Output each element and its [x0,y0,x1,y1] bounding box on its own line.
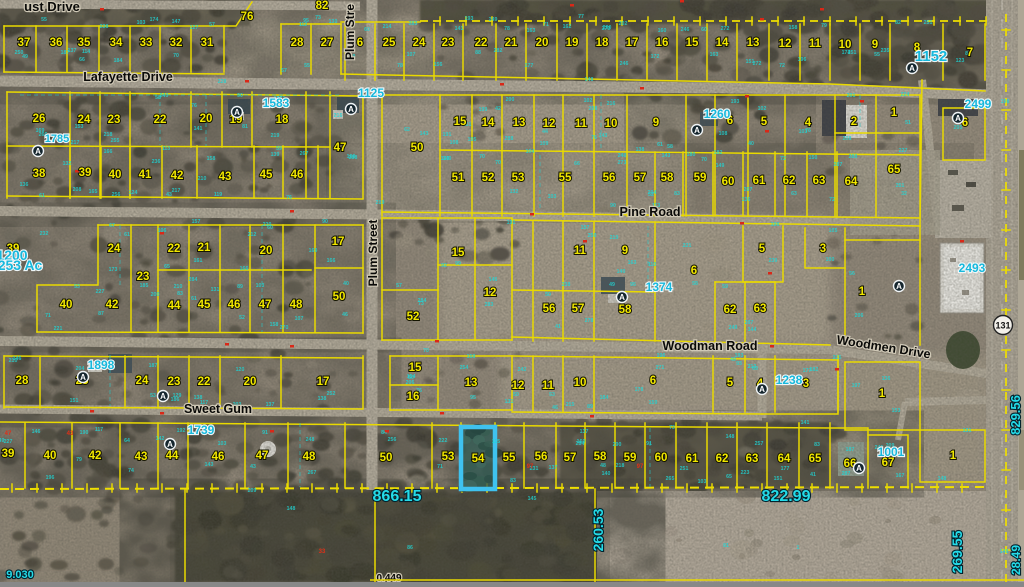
svg-text:108: 108 [719,131,728,137]
svg-text:284: 284 [189,277,198,283]
svg-text:219: 219 [271,133,280,139]
svg-text:150: 150 [809,155,818,161]
svg-text:254: 254 [460,365,469,371]
svg-text:159: 159 [467,354,476,360]
svg-text:142: 142 [156,436,165,442]
svg-text:196: 196 [798,57,807,63]
svg-text:62: 62 [724,304,737,316]
svg-text:3: 3 [820,243,826,255]
svg-text:139: 139 [271,152,280,158]
svg-text:76: 76 [241,11,254,23]
svg-text:255: 255 [111,138,120,144]
svg-text:16: 16 [656,37,669,49]
svg-text:284: 284 [576,441,585,447]
svg-text:267: 267 [744,187,753,193]
svg-text:22: 22 [168,243,181,255]
svg-text:238: 238 [562,282,571,288]
svg-text:143: 143 [420,131,429,137]
svg-text:81: 81 [723,543,729,549]
svg-text:28: 28 [291,37,304,49]
svg-text:1: 1 [797,545,800,551]
svg-text:147: 147 [172,19,181,25]
svg-text:10: 10 [839,39,852,51]
svg-text:17: 17 [332,236,345,248]
svg-text:47: 47 [334,142,347,154]
svg-text:251: 251 [924,20,933,26]
svg-text:A: A [348,105,354,114]
svg-text:184: 184 [600,395,609,401]
svg-text:102: 102 [758,106,767,112]
svg-text:180: 180 [687,152,696,158]
svg-text:251: 251 [680,466,689,472]
svg-text:20: 20 [260,245,273,257]
svg-text:50: 50 [411,142,424,154]
svg-text:38: 38 [33,168,46,180]
svg-text:187: 187 [846,447,855,453]
svg-text:143: 143 [662,153,671,159]
svg-text:250: 250 [588,233,597,239]
svg-text:A: A [896,282,902,291]
svg-text:73: 73 [669,425,675,431]
svg-text:165: 165 [89,189,98,195]
svg-text:256: 256 [112,192,121,198]
svg-text:115: 115 [492,439,500,445]
svg-text:158: 158 [207,156,216,162]
svg-text:4: 4 [805,117,812,129]
svg-text:82: 82 [895,20,901,26]
svg-text:16: 16 [407,391,420,403]
svg-text:25: 25 [383,37,396,49]
svg-text:109: 109 [540,141,549,147]
svg-text:146: 146 [32,429,41,435]
svg-text:163: 163 [527,28,536,34]
svg-text:193: 193 [731,99,740,105]
svg-text:13: 13 [465,377,478,389]
svg-text:9: 9 [622,245,628,257]
svg-text:28.49: 28.49 [1009,545,1023,575]
svg-text:71: 71 [45,313,51,319]
svg-text:52: 52 [407,311,420,323]
svg-text:137: 137 [266,402,275,408]
svg-text:249: 249 [489,17,498,23]
svg-text:91: 91 [262,430,268,436]
svg-text:50: 50 [380,452,393,464]
svg-text:138: 138 [636,147,645,153]
svg-text:45: 45 [260,169,273,181]
svg-text:219: 219 [610,235,619,241]
svg-text:169: 169 [309,248,318,254]
svg-text:5: 5 [727,377,734,389]
svg-text:13: 13 [747,37,760,49]
svg-text:163: 163 [710,52,719,58]
svg-text:199: 199 [479,107,488,113]
svg-text:227: 227 [4,439,13,445]
svg-text:41: 41 [810,472,816,478]
svg-text:97: 97 [637,464,644,470]
svg-text:83: 83 [674,191,680,197]
svg-text:287: 287 [842,471,851,477]
svg-text:12: 12 [779,38,792,50]
svg-text:215: 215 [833,355,842,361]
svg-text:53: 53 [442,451,455,463]
svg-text:136: 136 [882,376,891,382]
svg-text:1260: 1260 [704,107,731,121]
svg-text:Sweet Gum: Sweet Gum [184,402,252,416]
svg-text:70: 70 [423,348,429,354]
svg-text:132: 132 [63,161,72,167]
svg-text:208: 208 [589,106,598,112]
svg-text:53: 53 [549,392,555,398]
svg-text:22: 22 [198,376,211,388]
svg-text:141: 141 [194,126,203,132]
svg-text:1374: 1374 [646,280,673,294]
svg-text:201: 201 [847,93,856,99]
svg-text:58: 58 [619,304,632,316]
svg-text:73: 73 [418,301,424,307]
svg-text:Plum Stre: Plum Stre [343,4,357,60]
svg-text:182: 182 [714,150,723,156]
svg-text:34: 34 [110,37,123,49]
svg-text:55: 55 [41,17,47,23]
svg-text:160: 160 [658,28,667,34]
svg-text:273: 273 [618,160,627,166]
svg-text:20: 20 [536,37,549,49]
svg-text:7: 7 [967,47,973,59]
svg-text:56: 56 [849,271,855,277]
svg-text:267: 267 [300,151,309,157]
svg-text:97: 97 [527,464,534,470]
svg-text:9: 9 [653,117,659,129]
svg-text:14: 14 [482,117,495,129]
svg-text:31: 31 [201,37,214,49]
svg-text:249: 249 [729,325,738,331]
svg-text:283: 283 [409,21,418,27]
svg-text:70: 70 [173,53,179,59]
svg-text:196: 196 [657,353,666,359]
svg-text:53: 53 [150,393,156,399]
svg-text:32: 32 [901,191,907,197]
svg-text:270: 270 [280,325,289,331]
svg-text:11: 11 [574,245,587,257]
svg-text:33: 33 [140,37,153,49]
svg-text:221: 221 [683,243,692,249]
svg-text:79: 79 [821,23,827,29]
svg-text:39: 39 [79,167,92,179]
svg-text:76: 76 [191,103,197,109]
svg-text:13: 13 [513,117,526,129]
svg-text:9.030: 9.030 [6,569,34,581]
svg-text:46: 46 [342,312,348,318]
svg-text:70: 70 [479,154,485,160]
svg-text:22: 22 [154,114,167,126]
svg-text:74: 74 [128,468,134,474]
svg-text:110: 110 [648,262,656,268]
svg-text:140: 140 [617,269,626,275]
svg-text:78: 78 [504,26,510,32]
svg-text:222: 222 [439,438,448,444]
svg-text:41: 41 [555,324,561,330]
svg-text:187: 187 [149,363,158,369]
svg-text:71: 71 [543,22,549,28]
svg-text:12: 12 [543,118,556,130]
svg-text:A: A [909,64,915,73]
svg-text:1001: 1001 [878,445,905,459]
svg-text:190: 190 [80,430,89,436]
svg-text:1152: 1152 [915,48,948,65]
svg-text:136: 136 [742,197,751,203]
svg-text:102: 102 [584,98,593,104]
svg-text:236: 236 [152,159,161,165]
svg-text:238: 238 [100,24,109,30]
svg-text:A: A [167,440,173,449]
svg-text:146: 146 [489,277,498,283]
svg-text:251: 251 [896,183,905,189]
svg-text:15: 15 [454,116,467,128]
svg-text:A: A [619,293,625,302]
svg-text:81: 81 [242,124,248,130]
svg-text:154: 154 [407,374,416,380]
svg-text:42: 42 [106,299,119,311]
svg-text:210: 210 [174,284,183,290]
svg-text:65: 65 [726,474,732,480]
svg-text:50: 50 [545,292,551,298]
svg-text:55: 55 [559,172,572,184]
svg-text:248: 248 [306,437,315,443]
svg-text:185: 185 [140,283,149,289]
svg-text:Plum Street: Plum Street [366,220,380,287]
svg-text:272: 272 [602,26,611,32]
svg-text:1238: 1238 [776,373,803,387]
svg-text:64: 64 [124,438,130,444]
svg-text:216: 216 [334,113,343,119]
svg-text:15: 15 [409,362,422,374]
svg-text:1739: 1739 [188,423,215,437]
svg-text:76: 76 [286,195,292,201]
svg-text:83: 83 [510,478,516,484]
svg-text:24: 24 [136,375,149,387]
svg-text:35: 35 [78,37,91,49]
svg-text:46: 46 [212,451,225,463]
svg-text:A: A [856,464,862,473]
svg-text:A: A [955,114,961,123]
svg-text:15: 15 [452,247,465,259]
svg-text:89: 89 [237,284,243,290]
svg-text:47: 47 [5,431,12,437]
svg-text:90: 90 [237,93,243,99]
svg-text:114: 114 [82,49,90,55]
svg-text:59: 59 [722,284,728,290]
svg-text:14: 14 [716,37,729,49]
svg-text:208: 208 [843,136,852,142]
svg-text:83: 83 [814,442,820,448]
svg-text:198: 198 [1001,99,1010,105]
svg-text:227: 227 [899,148,908,154]
svg-text:20: 20 [244,376,257,388]
svg-text:A: A [694,126,700,135]
svg-text:131: 131 [505,399,514,405]
svg-text:37: 37 [18,37,31,49]
svg-text:169: 169 [36,128,45,134]
svg-text:192: 192 [177,428,186,434]
svg-text:A: A [80,373,86,382]
svg-text:151: 151 [774,476,783,482]
svg-text:2499: 2499 [965,97,992,111]
svg-text:200: 200 [506,97,515,103]
svg-text:1: 1 [859,286,866,298]
svg-text:172: 172 [651,54,660,60]
svg-text:99: 99 [455,261,461,267]
svg-text:148: 148 [1000,549,1009,555]
svg-text:157: 157 [192,219,201,225]
svg-text:1785: 1785 [45,133,69,145]
svg-text:59: 59 [694,172,707,184]
svg-text:1: 1 [891,107,898,119]
svg-text:61: 61 [124,232,130,238]
svg-text:48: 48 [290,299,303,311]
svg-text:288: 288 [849,154,858,160]
svg-text:132: 132 [510,189,519,195]
svg-text:22: 22 [475,37,488,49]
svg-text:Woodman Road: Woodman Road [663,339,758,353]
svg-text:77: 77 [578,14,584,20]
svg-text:200: 200 [151,292,160,298]
svg-text:46: 46 [552,405,558,411]
svg-text:127: 127 [190,25,199,31]
svg-text:60: 60 [722,176,735,188]
svg-text:92: 92 [441,263,447,269]
svg-text:143: 143 [441,156,450,162]
svg-text:246: 246 [681,27,690,33]
svg-text:A: A [35,147,41,156]
svg-text:257: 257 [755,441,764,447]
svg-text:2: 2 [851,116,857,128]
svg-text:1: 1 [879,388,886,400]
svg-text:232: 232 [40,231,49,237]
svg-text:55: 55 [304,63,310,69]
svg-text:57: 57 [396,283,402,289]
svg-text:131: 131 [995,321,1010,331]
svg-text:209: 209 [248,488,257,494]
svg-text:44: 44 [166,450,179,462]
svg-text:145: 145 [528,496,537,502]
svg-text:197: 197 [852,383,861,389]
svg-text:6: 6 [650,375,656,387]
svg-text:195: 195 [468,137,477,143]
svg-text:55: 55 [874,52,880,58]
svg-text:113: 113 [162,146,170,152]
svg-text:260.53: 260.53 [590,508,606,551]
svg-text:228: 228 [218,79,227,85]
svg-text:63: 63 [813,175,826,187]
svg-text:79: 79 [76,457,82,463]
svg-text:69: 69 [752,366,758,372]
svg-text:50: 50 [333,291,346,303]
svg-text:206: 206 [406,380,415,386]
svg-text:73: 73 [315,15,321,21]
svg-text:288: 288 [505,136,514,142]
svg-text:131: 131 [963,428,972,434]
svg-text:120: 120 [236,367,245,373]
svg-text:23: 23 [108,114,121,126]
svg-text:66: 66 [79,57,85,63]
svg-text:41: 41 [139,169,152,181]
svg-text:43: 43 [219,171,232,183]
svg-text:253 Ac: 253 Ac [0,257,43,273]
svg-text:103: 103 [548,194,557,200]
svg-text:21: 21 [198,242,211,254]
svg-text:148: 148 [726,434,735,440]
svg-text:57: 57 [209,22,215,28]
svg-text:49: 49 [22,54,28,60]
svg-text:3: 3 [803,378,809,390]
svg-text:131: 131 [211,287,220,293]
svg-text:62: 62 [716,453,729,465]
svg-text:58: 58 [594,451,607,463]
svg-text:49: 49 [609,282,615,288]
svg-text:27: 27 [321,37,334,49]
svg-text:117: 117 [95,427,103,433]
svg-text:215: 215 [566,402,575,408]
svg-text:196: 196 [46,475,55,481]
svg-text:193: 193 [735,353,744,359]
svg-text:119: 119 [214,192,222,198]
svg-text:137: 137 [549,465,558,471]
svg-text:11: 11 [575,118,588,130]
svg-text:93: 93 [736,361,742,367]
svg-text:51: 51 [452,172,465,184]
svg-text:105: 105 [829,228,838,234]
svg-text:57: 57 [634,172,647,184]
svg-text:208: 208 [73,187,82,193]
svg-text:137: 137 [580,429,589,435]
svg-text:46: 46 [291,169,304,181]
svg-text:103: 103 [698,479,707,485]
svg-text:95: 95 [470,395,476,401]
svg-text:240: 240 [160,93,169,99]
svg-text:ust Drive: ust Drive [24,0,80,14]
svg-text:24: 24 [78,114,91,126]
svg-text:2493: 2493 [959,261,986,275]
svg-text:137: 137 [68,48,77,54]
svg-text:43: 43 [250,464,256,470]
svg-text:130: 130 [329,19,338,25]
svg-text:24: 24 [413,37,426,49]
svg-text:52: 52 [482,172,495,184]
svg-text:107: 107 [295,316,304,322]
svg-text:Lafayette Drive: Lafayette Drive [83,70,173,84]
svg-text:151: 151 [70,398,79,404]
svg-text:20: 20 [200,113,213,125]
svg-text:82: 82 [316,0,329,12]
svg-text:138: 138 [318,396,327,402]
svg-text:60: 60 [655,452,668,464]
svg-text:103: 103 [256,283,265,289]
svg-text:174: 174 [150,17,159,23]
svg-text:287: 287 [834,162,843,168]
svg-text:45: 45 [198,299,211,311]
svg-text:1583: 1583 [263,96,290,110]
svg-text:59: 59 [624,452,637,464]
svg-text:223: 223 [741,470,750,476]
svg-text:191: 191 [443,132,452,138]
svg-text:202: 202 [619,21,628,27]
svg-text:61: 61 [657,142,663,148]
svg-text:217: 217 [172,188,181,194]
svg-text:19: 19 [566,37,579,49]
svg-text:141: 141 [455,26,464,32]
svg-text:146: 146 [13,356,22,362]
svg-text:219: 219 [376,200,385,206]
